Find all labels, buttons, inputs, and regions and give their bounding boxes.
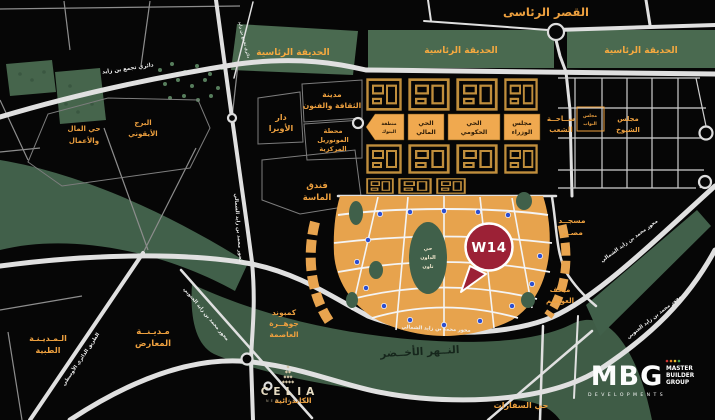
small-park <box>6 60 56 96</box>
capitals-museum-label: متحف <box>550 286 571 294</box>
opera-label: الأوبرا <box>269 123 294 133</box>
cabinet-label: مجلس <box>512 120 532 127</box>
cabinet-block <box>504 114 540 140</box>
downtown-label: الداون <box>420 255 436 261</box>
presidential-park-label: الحديقة الرئاسية <box>604 46 677 56</box>
downtown-label: تاون <box>422 264 433 270</box>
governmental-district-block <box>448 114 500 140</box>
senate-label: الشيوخ <box>616 126 640 134</box>
monorail-station-label: المركزية <box>319 145 346 153</box>
culture-city-label: مدينة <box>322 90 342 99</box>
almasa-hotel-label: فندق <box>306 181 328 191</box>
financial-district-label: المالي <box>416 129 436 136</box>
celia-tree-icon: ◆◆◆◆ <box>282 379 295 384</box>
jewel-compound-label: العاصمة <box>269 330 298 339</box>
senate-label: مجلس <box>617 115 639 123</box>
iconic-tower-label: البرج <box>134 119 151 127</box>
banks-zone-label: البنوك <box>382 130 397 135</box>
mbg-group-line: GROUP <box>666 380 690 386</box>
downtown-label: حي <box>424 246 433 252</box>
presidential-park-label: الحديقة الرئاسية <box>256 48 329 58</box>
money-business-label: حي المال <box>68 125 101 133</box>
celia-subtitle: NEW CAPITAL <box>266 399 312 403</box>
iconic-tower-label: الأيقوني <box>128 129 157 138</box>
parliament-label: مجلس <box>583 114 597 119</box>
presidential-palace-label: القصر الرئاسى <box>503 5 589 19</box>
mbg-group-line: BUILDER <box>666 373 695 379</box>
monorail-station-label: محطة <box>324 127 343 135</box>
monorail-station-label: المونوريل <box>317 136 349 144</box>
location-map: القصر الرئاسى الحديقة الرئاسية الحديقة ا… <box>0 0 715 420</box>
celia-name: CELIA <box>261 386 320 398</box>
capitals-museum-label: العواصم <box>546 297 574 305</box>
banks-zone-label: منطقة <box>381 122 396 127</box>
embassies-district-label: حي السفارات <box>494 401 549 410</box>
governmental-district-label: الحي <box>466 120 481 127</box>
egypt-mosque-label: مصــر <box>560 228 583 237</box>
pin-logo-text: W14 <box>471 240 506 256</box>
mbg-name: MBG <box>591 361 664 392</box>
governmental-district-label: الحكومي <box>461 129 487 136</box>
almasa-hotel-label: الماسة <box>303 193 332 203</box>
opera-label: دار <box>274 113 286 122</box>
money-business-label: والأعمال <box>69 136 99 145</box>
jewel-compound-label: جوهــرة <box>269 319 299 328</box>
peoples-square-label: الشعب <box>549 126 573 134</box>
expo-city-label: المعارض <box>135 339 171 349</box>
medical-city-label: الطبية <box>36 346 61 355</box>
egypt-mosque-label: مسجــد <box>558 216 585 225</box>
financial-district-label: الحي <box>418 120 433 127</box>
mbg-group-line: MASTER <box>666 366 693 372</box>
culture-city-label: الثقافة والفنون <box>303 101 361 110</box>
financial-district-block <box>408 114 444 140</box>
medical-city-label: الـمـديـنـة <box>29 334 67 343</box>
peoples-square-label: ســاحــة <box>547 115 575 123</box>
presidential-park-label: الحديقة الرئاسية <box>424 46 497 56</box>
parliament-label: النواب <box>583 122 597 127</box>
cabinet-label: الوزراء <box>512 129 533 136</box>
jewel-compound-label: كمبوند <box>272 308 297 317</box>
mbg-subtitle: DEVELOPMENTS <box>588 392 666 398</box>
expo-city-label: مـديـنــة <box>136 327 170 337</box>
